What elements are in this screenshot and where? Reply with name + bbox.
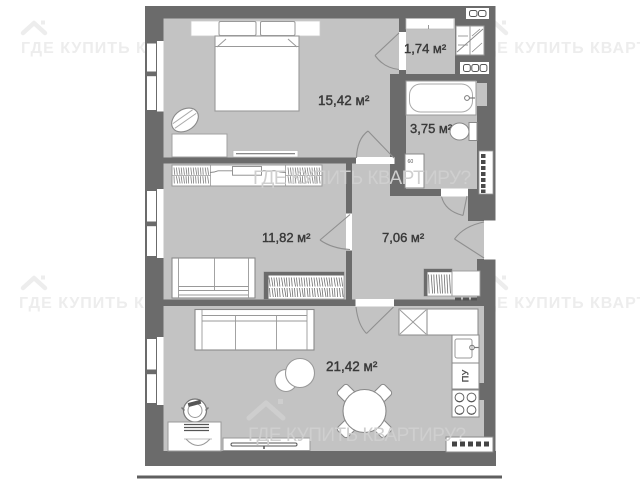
- svg-text:60: 60: [408, 159, 414, 165]
- svg-text:ГДЕ КУПИТЬ КВАРТИРУ?: ГДЕ КУПИТЬ КВАРТИРУ?: [248, 425, 466, 446]
- svg-text:21,42 м²: 21,42 м²: [326, 359, 378, 374]
- svg-text:ГДЕ КУПИТЬ КВАРТИРУ?: ГДЕ КУПИТЬ КВАРТИРУ?: [475, 40, 640, 57]
- svg-text:11,82 м²: 11,82 м²: [262, 230, 311, 245]
- svg-text:7,06 м²: 7,06 м²: [382, 230, 425, 245]
- svg-text:1,74 м²: 1,74 м²: [404, 41, 447, 56]
- svg-text:ГДЕ КУПИТЬ КВАРТИРУ?: ГДЕ КУПИТЬ КВАРТИРУ?: [475, 295, 640, 312]
- svg-text:15,42 м²: 15,42 м²: [318, 93, 370, 108]
- svg-text:ГДЕ КУПИТЬ КВАРТИРУ?: ГДЕ КУПИТЬ КВАРТИРУ?: [253, 168, 471, 189]
- svg-text:3,75 м²: 3,75 м²: [410, 121, 453, 136]
- svg-text:ПУ: ПУ: [461, 370, 472, 383]
